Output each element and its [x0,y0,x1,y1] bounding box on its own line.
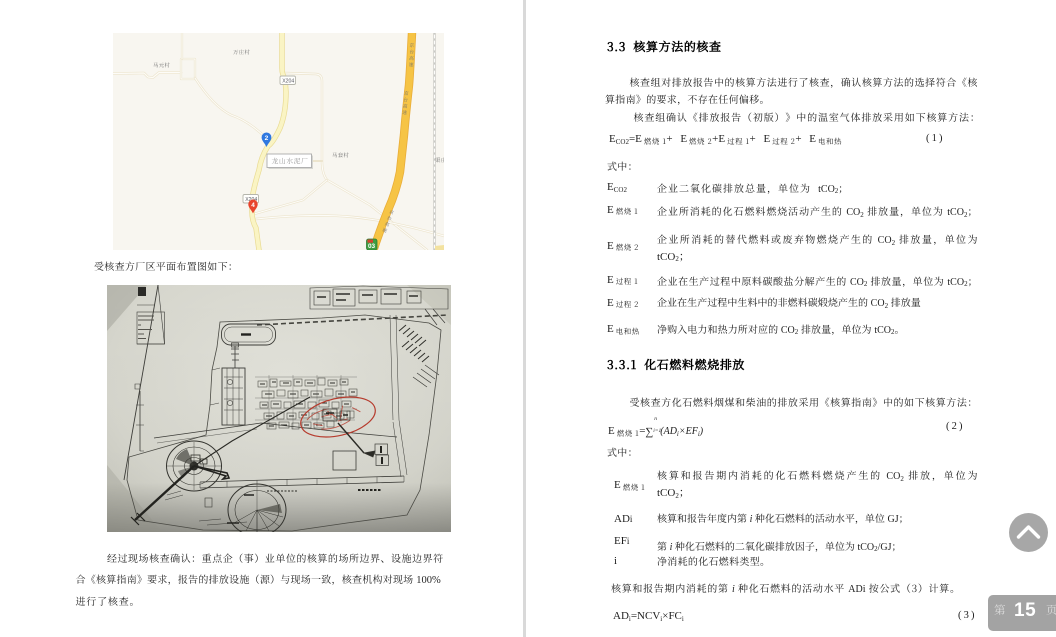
svg-text:4: 4 [251,202,255,209]
svg-text:2: 2 [265,135,269,142]
svg-text:京台高速: 京台高速 [408,43,415,69]
svg-text:马元村: 马元村 [153,61,170,69]
svg-text:万庄村: 万庄村 [233,48,250,56]
svg-text:X204: X204 [282,79,294,85]
svg-text:马套村: 马套村 [332,151,349,159]
svg-text:龙山水泥厂: 龙山水泥厂 [272,156,309,166]
svg-text:渠庄: 渠庄 [435,156,444,164]
svg-text:03: 03 [368,243,376,250]
